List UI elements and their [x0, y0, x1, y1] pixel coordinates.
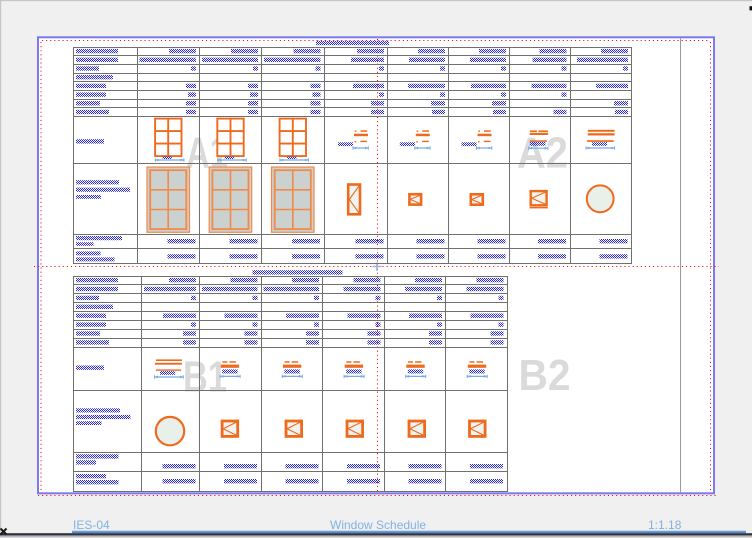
- svg-text:IES-04: IES-04: [73, 518, 110, 532]
- svg-text:Window Schedule: Window Schedule: [330, 518, 426, 532]
- svg-text:A2: A2: [517, 130, 568, 178]
- svg-text:B2: B2: [519, 352, 571, 400]
- svg-text:1:1.18: 1:1.18: [648, 518, 682, 532]
